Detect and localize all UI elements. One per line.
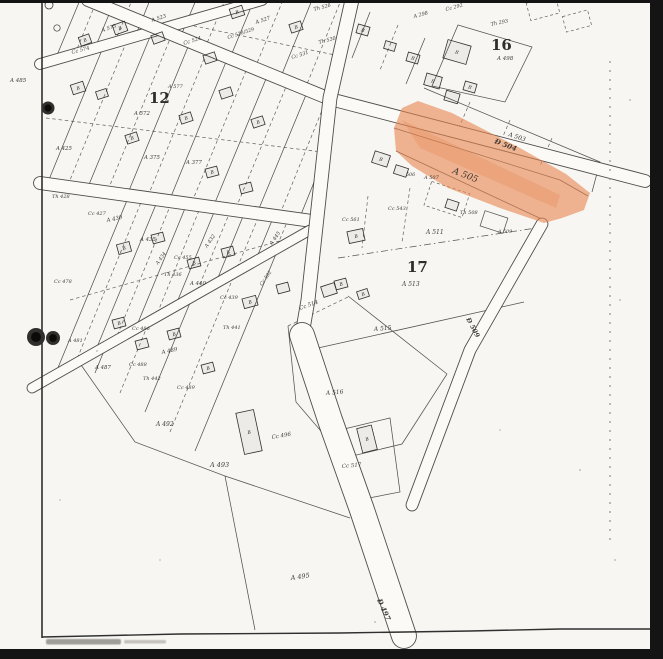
scan-bar-bottom	[0, 649, 663, 659]
fold-line-dot	[609, 448, 611, 450]
parcel-label: Cc 486	[132, 326, 151, 332]
fold-line-dot	[609, 124, 611, 126]
fold-line-dot	[609, 421, 611, 423]
parcel-label: Th 526	[313, 2, 332, 13]
parcel-label: A 375	[143, 155, 160, 161]
fold-line-dot	[609, 178, 611, 180]
fold-line-dot	[609, 196, 611, 198]
fold-line-dot	[609, 313, 611, 315]
fold-line-dot	[609, 331, 611, 333]
margin-label: A 485	[9, 78, 27, 84]
parcel-label: A 507	[423, 175, 440, 181]
parcel-label: Cc 292	[445, 3, 464, 13]
binder-hole-center	[44, 104, 51, 111]
parcel-label: A 493	[209, 461, 229, 469]
parcel-label: Cc 496	[271, 432, 292, 441]
building-mark: B	[242, 295, 258, 308]
building-mark: B	[205, 166, 219, 178]
fold-line-dot	[609, 403, 611, 405]
building-mark	[276, 282, 290, 294]
building-mark: B	[406, 52, 420, 64]
fold-line-dot	[609, 151, 611, 153]
parcel-label: A 527	[254, 15, 272, 26]
building-mark	[96, 88, 109, 99]
fold-line-dot	[609, 529, 611, 531]
parcel-label: A 498	[496, 56, 514, 62]
parcel-label: Cc 489	[177, 385, 196, 391]
building-mark	[239, 182, 253, 194]
fold-line-dot	[609, 142, 611, 144]
building-mark	[445, 199, 459, 211]
parcel-label: A 377	[185, 160, 202, 166]
parcel-label: 506	[406, 172, 415, 178]
fold-line-dot	[609, 340, 611, 342]
building-mark: B	[116, 241, 131, 254]
fold-line	[609, 61, 611, 540]
building-mark: B	[221, 246, 235, 258]
parcel-label: Th 442	[143, 376, 161, 382]
block-number: 12	[149, 89, 170, 107]
parcel-label: A 435	[139, 237, 156, 243]
fold-line-dot	[609, 367, 611, 369]
fold-line-dot	[609, 277, 611, 279]
building-mark: B	[289, 21, 303, 33]
building-mark: B	[463, 81, 477, 93]
building-mark: B	[70, 81, 85, 95]
parcel-label: A 516	[325, 388, 344, 397]
fold-line-dot	[609, 160, 611, 162]
fold-line-dot	[609, 115, 611, 117]
binder-hole-center	[31, 332, 41, 342]
parcel-label: A 511	[425, 229, 444, 236]
parcel-label: A 572	[133, 111, 150, 117]
parcel-label: Cc 502	[259, 270, 274, 287]
cadastral-map-scan: BBBBBBBBBBBBBBBBBBBBBBBBBBB Cc 574A 575A…	[0, 0, 663, 659]
fold-line-dot	[609, 259, 611, 261]
binder-hole-center	[49, 334, 57, 342]
fold-line-dot	[609, 466, 611, 468]
fold-line-dot	[609, 322, 611, 324]
fold-line-dot	[609, 232, 611, 234]
parcel-label: Cc 543	[388, 206, 406, 212]
building-mark: B	[424, 73, 443, 89]
fold-line-dot	[609, 250, 611, 252]
building-mark: B	[125, 132, 139, 144]
building-mark: B	[357, 425, 378, 453]
fold-line-dot	[609, 223, 611, 225]
building-mark: B	[356, 24, 370, 36]
parcel-label: A 425	[55, 146, 72, 152]
fold-line-dot	[609, 358, 611, 360]
building-mark	[135, 338, 149, 350]
building-mark: B	[443, 40, 471, 65]
parcel-label: Cc 561	[342, 217, 360, 223]
parcel-label: Cc 488	[129, 362, 147, 368]
sheet-border	[42, 0, 650, 638]
parcel-label: Th 508	[460, 210, 478, 216]
block-number: 16	[491, 36, 512, 54]
fold-line-dot	[609, 430, 611, 432]
fold-line-dot	[609, 268, 611, 270]
fold-line-dot	[609, 484, 611, 486]
fold-line-dot	[609, 295, 611, 297]
parcel-label: A 489	[160, 347, 178, 357]
fold-line-dot	[609, 349, 611, 351]
parcel-label: Th 436	[164, 272, 183, 278]
fold-line-dot	[609, 214, 611, 216]
building-mark: B	[179, 112, 193, 124]
parcel-label: A 434	[154, 251, 168, 267]
fold-line-dot	[609, 394, 611, 396]
fold-line-dot	[609, 385, 611, 387]
fold-line-dot	[609, 133, 611, 135]
fold-line-dot	[609, 475, 611, 477]
fold-line-dot	[609, 511, 611, 513]
parcel-label: Cc 439	[220, 295, 239, 301]
fold-line-dot	[609, 205, 611, 207]
parcel-label: A 509	[497, 229, 512, 235]
fold-line-dot	[609, 439, 611, 441]
parcel-label: A 481	[67, 338, 83, 344]
fold-line-dot	[609, 241, 611, 243]
neatline	[42, 629, 650, 637]
parcel-label: Cc 455	[174, 255, 192, 261]
parcel-label: A 487	[94, 365, 111, 371]
fold-line-dot	[609, 79, 611, 81]
scan-smudge	[46, 639, 166, 645]
scan-bar-top	[0, 0, 663, 3]
building-mark: B	[347, 228, 365, 243]
fold-line-dot	[609, 304, 611, 306]
parcel-label: A 298	[412, 10, 429, 20]
fold-line-dot	[609, 70, 611, 72]
parcel-label: A 492	[155, 421, 174, 428]
fold-line-dot	[609, 88, 611, 90]
parcel-label: Cc 427	[88, 211, 107, 217]
scan-bar-right	[650, 0, 663, 659]
fold-line-dot	[609, 412, 611, 414]
building-mark: B	[167, 328, 181, 340]
fold-line-dot	[609, 286, 611, 288]
fold-line-dot	[609, 538, 611, 540]
binder-holes	[27, 102, 60, 347]
building-mark	[384, 41, 397, 52]
fold-line-dot	[609, 61, 611, 63]
block-number: 17	[407, 258, 428, 276]
fold-line-dot	[609, 106, 611, 108]
parcel-label: A 513	[401, 281, 420, 288]
building-mark	[219, 87, 233, 99]
parcel-label: Th 428	[52, 194, 70, 200]
fold-line-dot	[609, 169, 611, 171]
building-mark: B	[357, 288, 370, 299]
parcel-label: A 495	[289, 571, 310, 582]
parcel-label: Cc 531	[291, 50, 310, 61]
parcel-label: A 440	[189, 281, 206, 287]
map-canvas: BBBBBBBBBBBBBBBBBBBBBBBBBBB Cc 574A 575A…	[0, 0, 663, 659]
fold-line-dot	[609, 187, 611, 189]
building-mark: B	[201, 362, 215, 374]
building-mark: B	[251, 116, 265, 128]
fold-line-dot	[609, 493, 611, 495]
parcel-label: Cc 478	[54, 279, 72, 285]
building-mark: B	[236, 410, 262, 455]
building-mark: B	[372, 151, 391, 167]
sheet-mark-circle	[54, 25, 60, 31]
fold-line-dot	[609, 457, 611, 459]
parcel-label: Th 441	[223, 325, 241, 331]
building-mark: B	[112, 317, 126, 329]
parcel-label: Th 293	[490, 18, 509, 28]
fold-line-dot	[609, 502, 611, 504]
fold-line-dot	[609, 520, 611, 522]
fold-line-dot	[609, 97, 611, 99]
parcel-label: A 430	[105, 215, 123, 225]
fold-line-dot	[609, 376, 611, 378]
building-mark	[444, 90, 460, 103]
building-mark	[321, 283, 338, 298]
